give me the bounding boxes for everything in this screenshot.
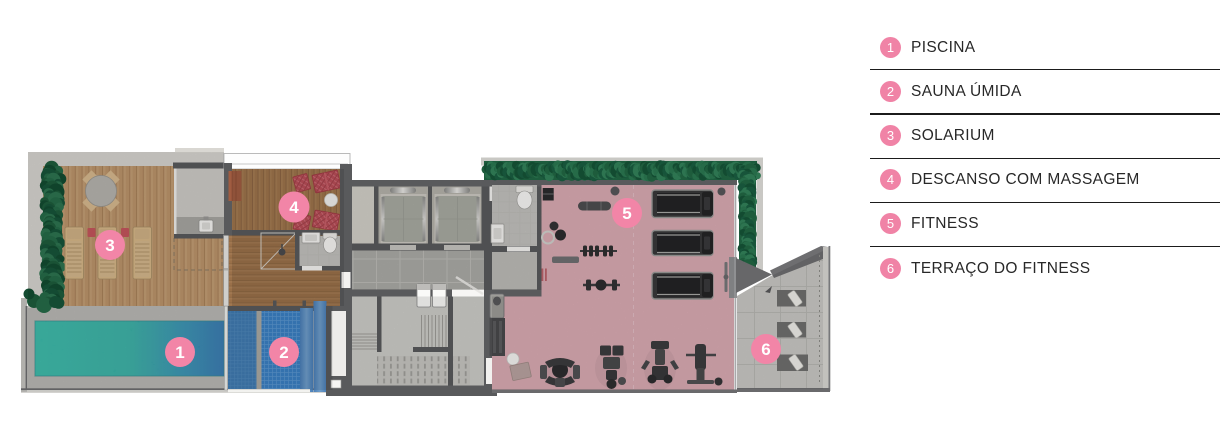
svg-text:1: 1 (175, 343, 184, 362)
svg-text:6: 6 (761, 340, 770, 359)
svg-text:2: 2 (279, 343, 288, 362)
svg-text:5: 5 (622, 204, 631, 223)
svg-text:3: 3 (105, 236, 114, 255)
svg-text:4: 4 (289, 198, 299, 217)
